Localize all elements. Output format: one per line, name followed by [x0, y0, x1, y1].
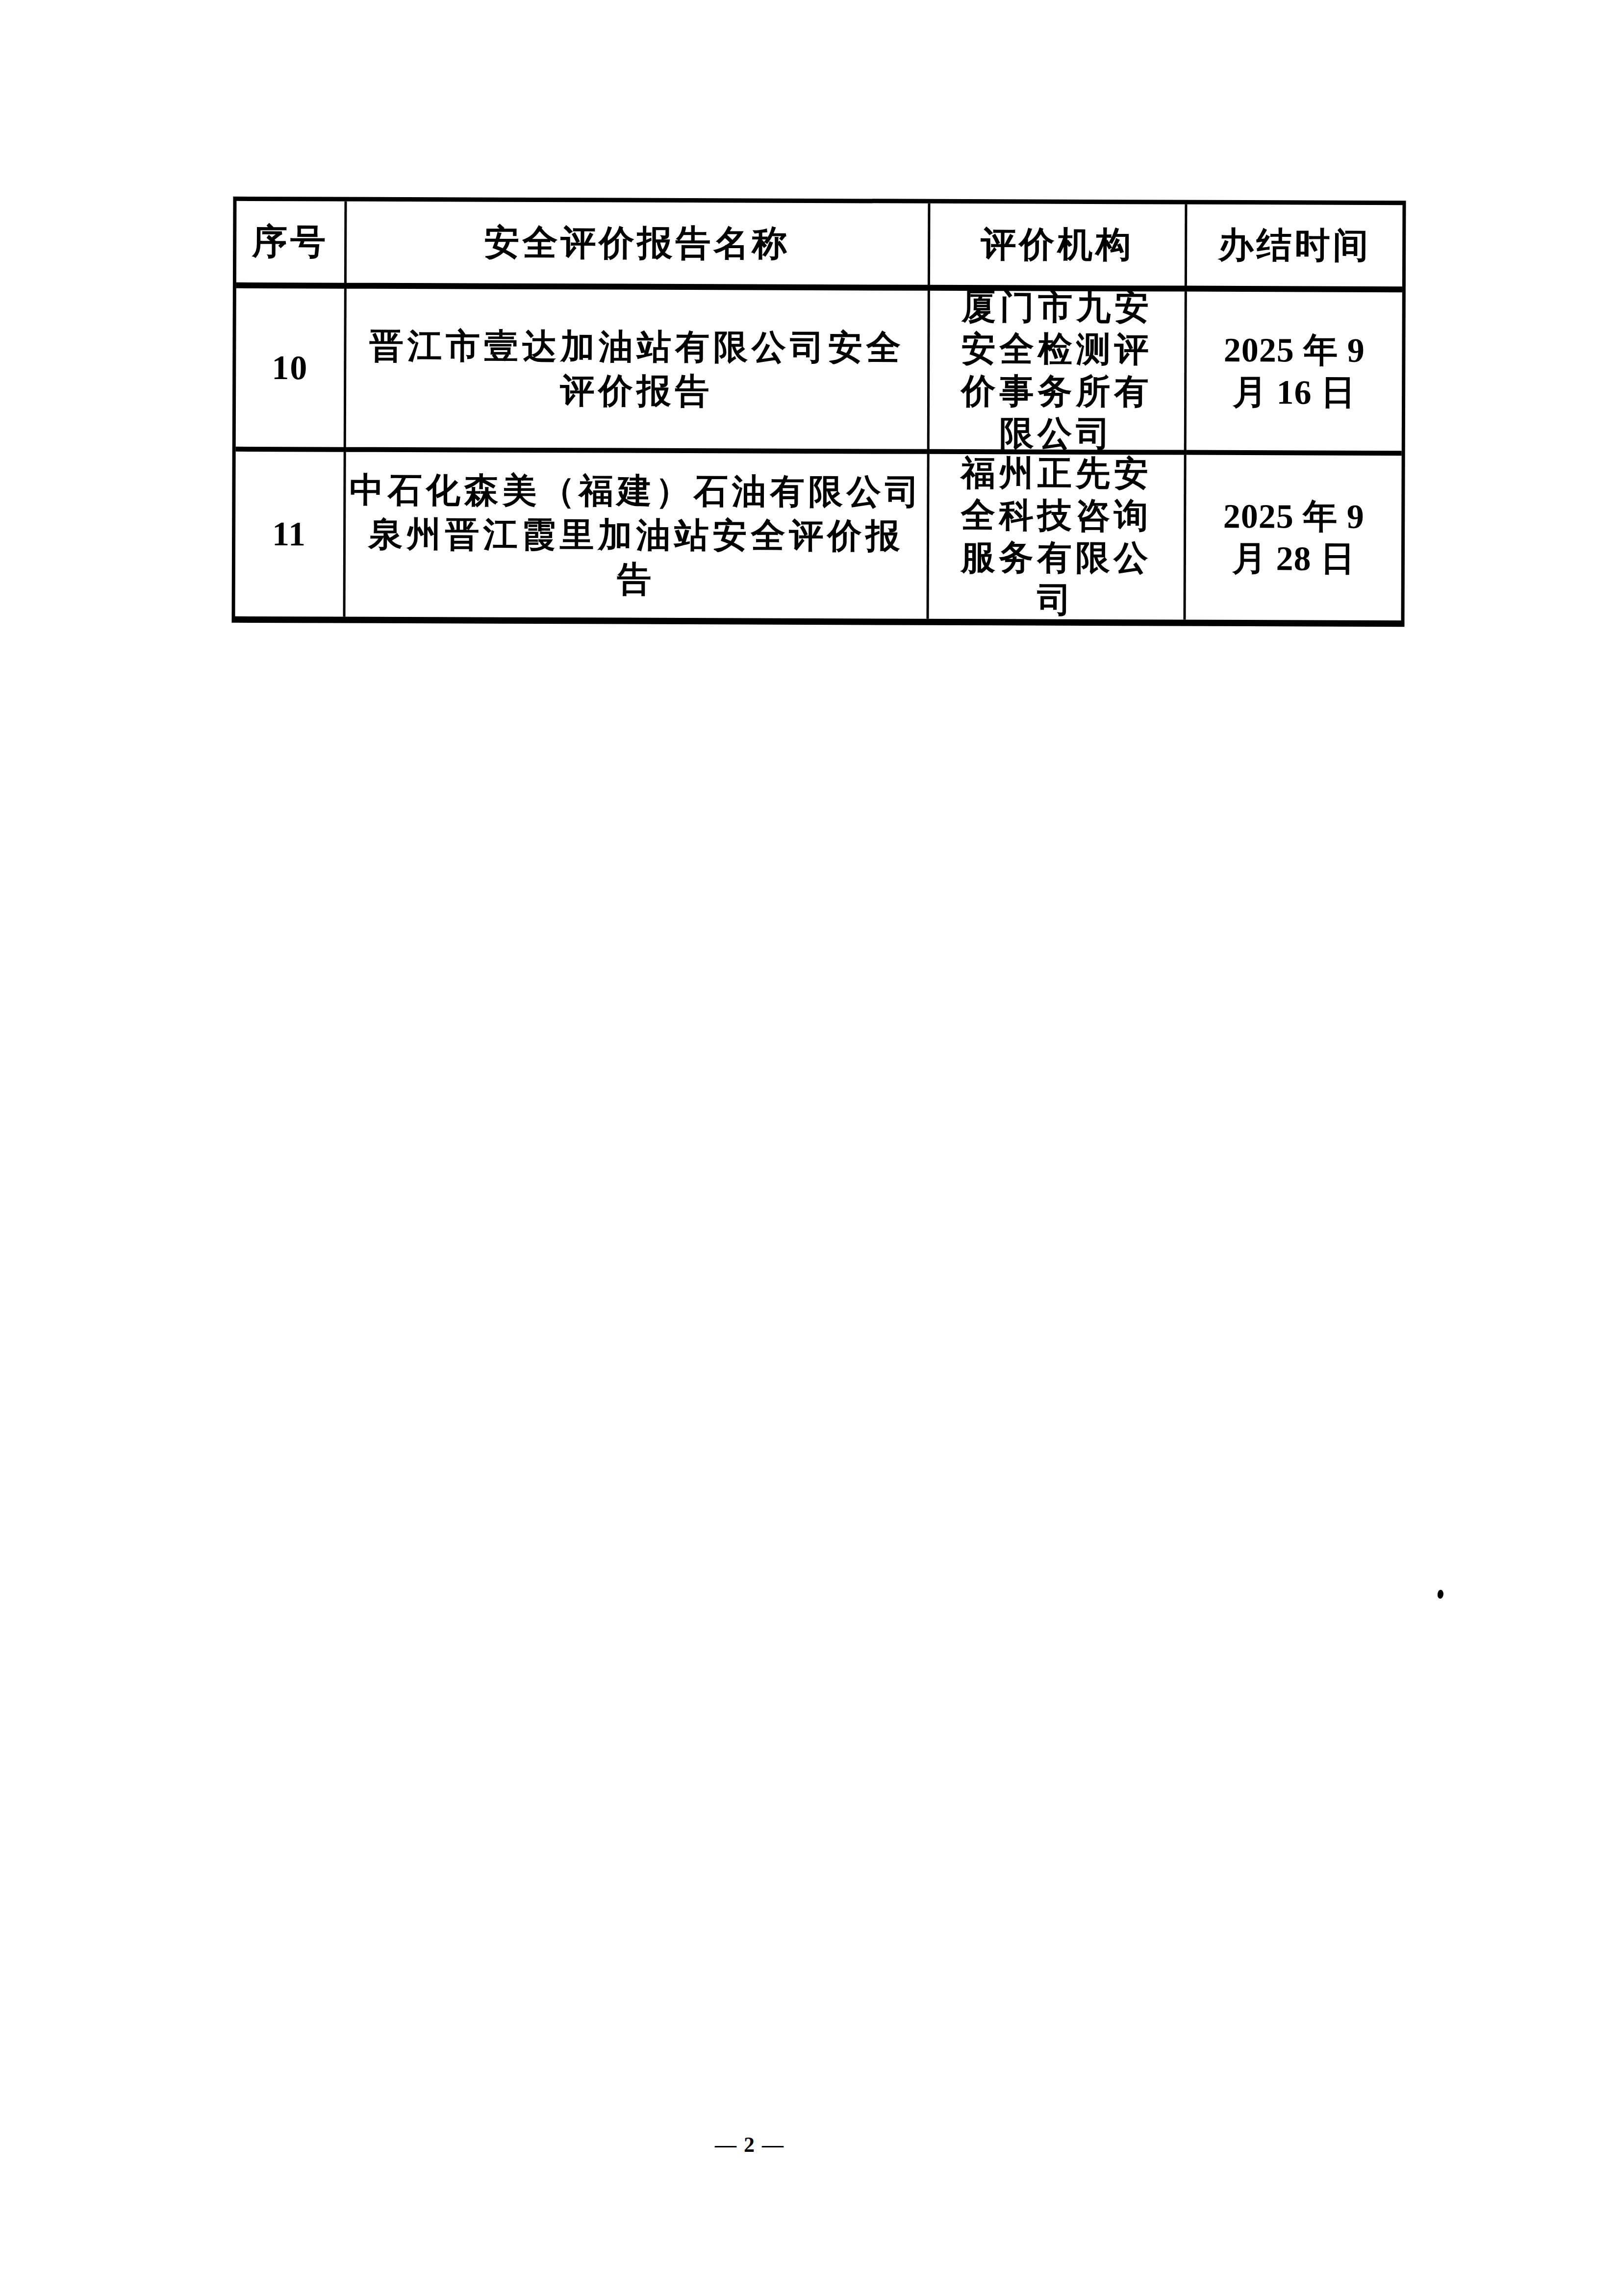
table-row-10-agency: 厦门市九安 安全检测评 价事务所有 限公司	[930, 291, 1187, 455]
page-number: — 2 —	[715, 2132, 784, 2157]
ink-speck	[1437, 1589, 1444, 1599]
table-row-11-report-name: 中石化森美（福建）石油有限公司 泉州晋江霞里加油站安全评价报 告	[346, 452, 930, 619]
table-row-11-finish-time: 2025 年 9 月 28 日	[1186, 455, 1402, 621]
column-header-report-name: 安全评价报告名称	[347, 202, 931, 291]
column-header-index: 序号	[236, 201, 347, 289]
document-page: 序号 安全评价报告名称 评价机构 办结时间 10 晋江市壹达加油站有限公司安全 …	[0, 0, 1618, 2296]
table-row-10-index: 10	[236, 288, 347, 452]
column-header-finish-time: 办结时间	[1187, 204, 1403, 293]
table-row-10-report-name: 晋江市壹达加油站有限公司安全 评价报告	[346, 289, 930, 454]
table-row-10-finish-time: 2025 年 9 月 16 日	[1187, 292, 1402, 456]
table-row-11-index: 11	[235, 452, 346, 617]
table-row-11-agency: 福州正先安 全科技咨询 服务有限公 司	[929, 454, 1187, 620]
column-header-agency: 评价机构	[930, 204, 1188, 292]
safety-report-table: 序号 安全评价报告名称 评价机构 办结时间 10 晋江市壹达加油站有限公司安全 …	[231, 197, 1406, 627]
